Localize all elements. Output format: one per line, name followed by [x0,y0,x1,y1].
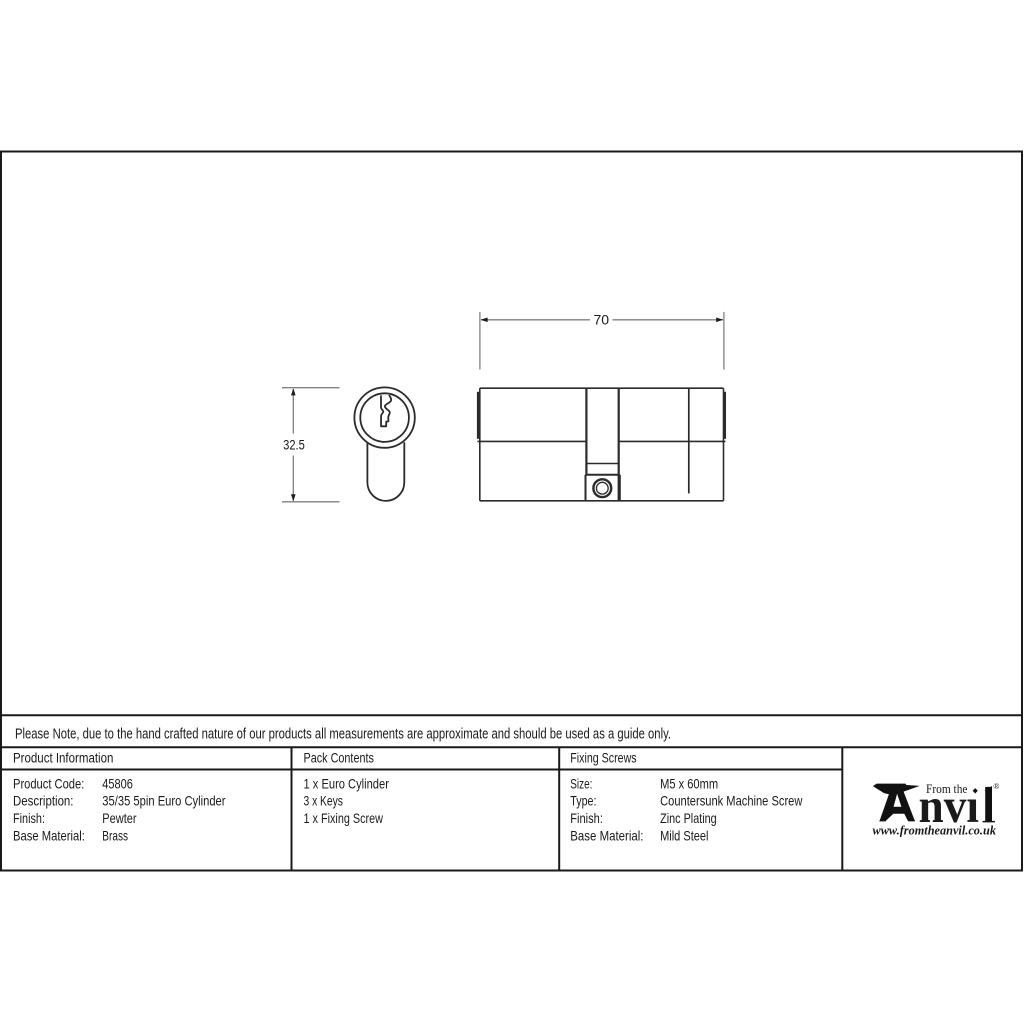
svg-text:Finish:: Finish: [13,811,45,826]
svg-text:www.fromtheanvil.co.uk: www.fromtheanvil.co.uk [873,823,997,838]
svg-text:Brass: Brass [102,829,128,844]
svg-text:1 x Euro Cylinder: 1 x Euro Cylinder [304,776,390,791]
svg-text:Type:: Type: [570,794,596,809]
svg-text:Description:: Description: [13,794,74,809]
svg-text:Base Material:: Base Material: [13,829,85,844]
svg-text:Pewter: Pewter [102,811,137,826]
svg-text:M5 x 60mm: M5 x 60mm [660,776,718,791]
svg-text:Mild Steel: Mild Steel [660,829,708,844]
svg-text:Size:: Size: [570,776,592,791]
svg-text:Base Material:: Base Material: [570,829,643,844]
svg-text:70: 70 [594,313,610,329]
svg-text:35/35 5pin Euro Cylinder: 35/35 5pin Euro Cylinder [102,794,226,809]
svg-text:Please Note, due to the hand c: Please Note, due to the hand crafted nat… [15,727,671,743]
svg-text:Product Code:: Product Code: [13,776,84,791]
svg-text:®: ® [993,782,999,791]
svg-text:Product Information: Product Information [13,751,113,766]
svg-text:3 x Keys: 3 x Keys [304,794,344,809]
svg-text:1 x Fixing Screw: 1 x Fixing Screw [304,811,384,826]
svg-text:32.5: 32.5 [283,437,305,453]
svg-text:From the: From the [926,782,968,796]
svg-text:Countersunk Machine Screw: Countersunk Machine Screw [660,794,802,809]
svg-text:Finish:: Finish: [570,811,603,826]
svg-text:45806: 45806 [102,776,133,791]
svg-text:Fixing Screws: Fixing Screws [570,751,636,766]
svg-text:Pack Contents: Pack Contents [304,751,375,766]
svg-text:Zinc Plating: Zinc Plating [660,811,717,826]
